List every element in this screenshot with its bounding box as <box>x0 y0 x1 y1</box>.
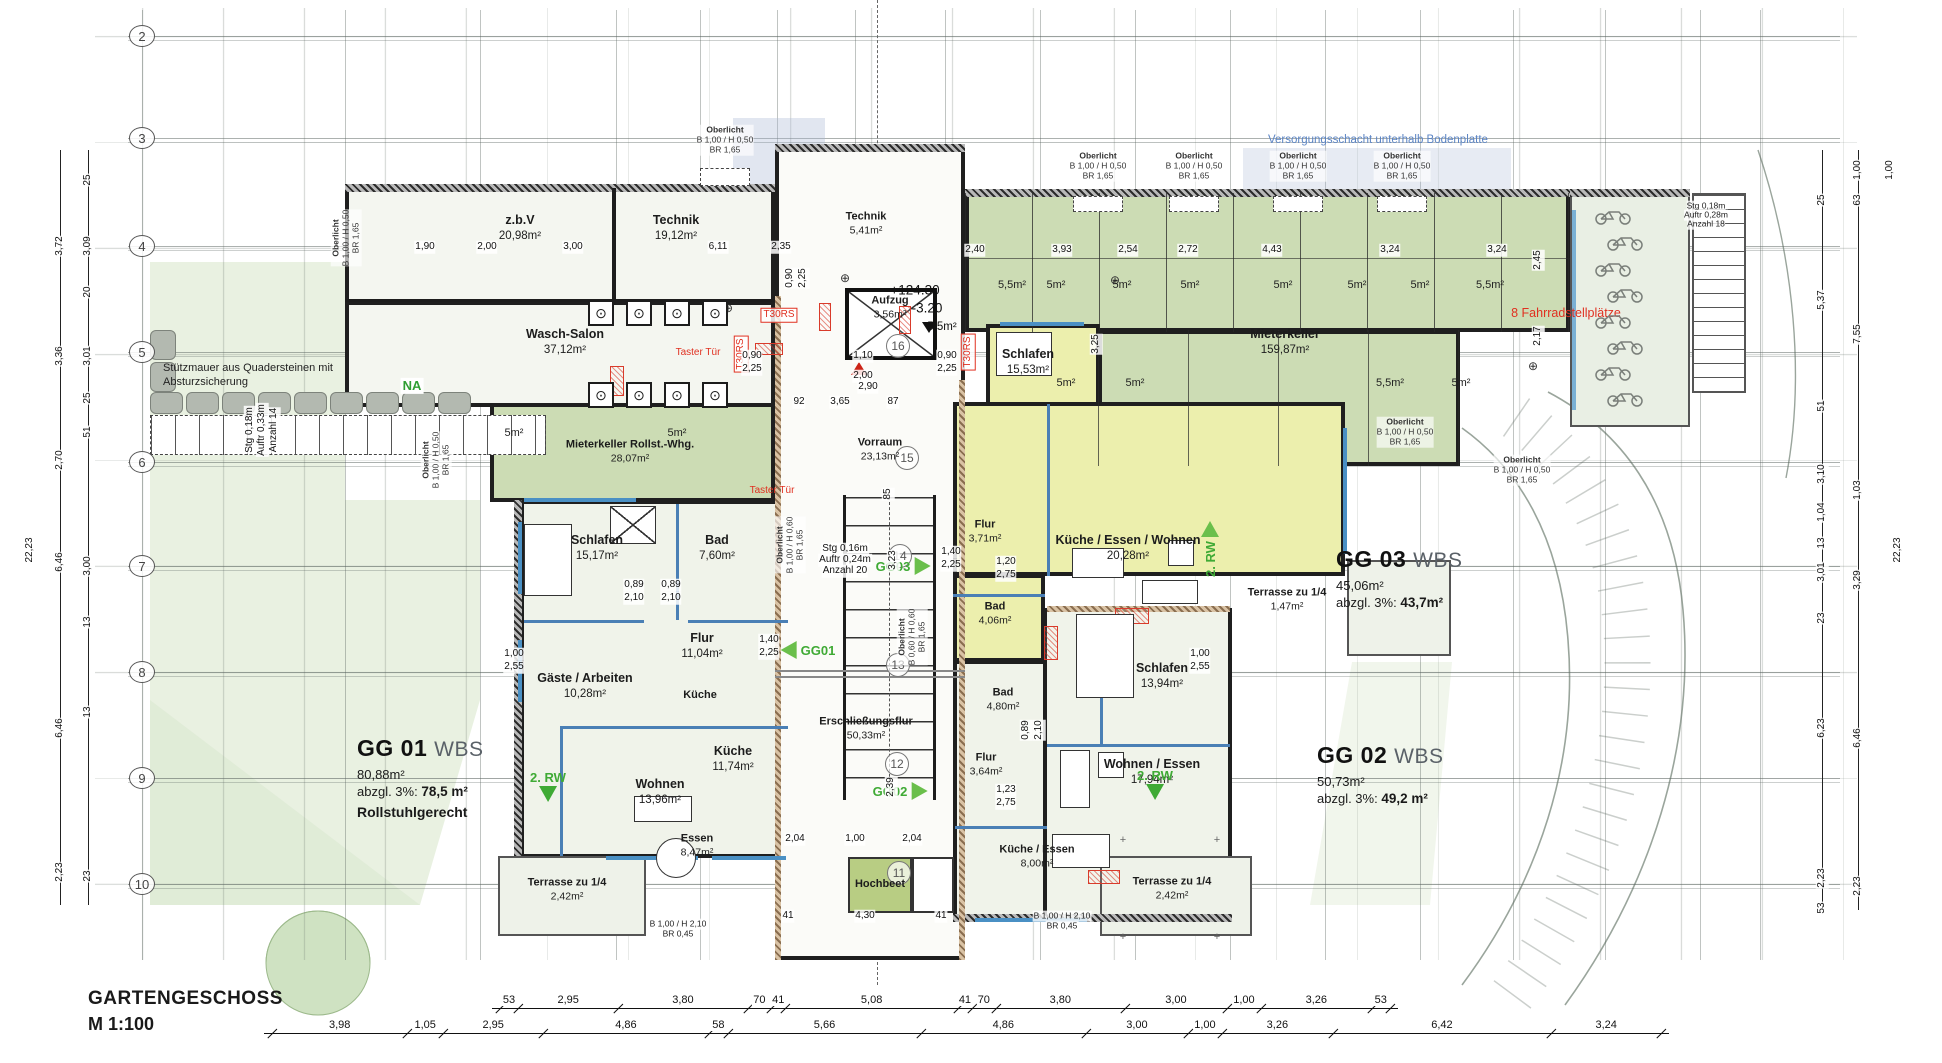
dimension-chain-value: 41 <box>771 994 785 1006</box>
dimension-text: 2,70 <box>54 449 67 470</box>
dimension-text: 3,93 <box>1051 244 1072 257</box>
arrow-label: GG01 <box>801 643 836 658</box>
annotation-redsm: Taster Tür <box>676 347 721 360</box>
washing-machine-icon: ⊙ <box>626 300 652 326</box>
oberlicht-line: B 1,00 / H 0,50 <box>1166 161 1223 171</box>
block-keller-wing <box>965 193 1570 332</box>
dimension-text: 20 <box>82 285 95 298</box>
dimension-text: 41 <box>781 910 794 923</box>
furniture-bed-gg02 <box>1076 614 1134 698</box>
axis-line-v <box>142 10 143 960</box>
apartment-label-gg03: GG 03 WBS45,06m²abzgl. 3%: 43,7m² <box>1336 546 1463 610</box>
wall-gg01-flur-b <box>688 620 788 623</box>
dimension-text: 3,01 <box>82 345 95 366</box>
annotation-redbox: T30RS <box>961 333 976 370</box>
room-area: 159,87m² <box>1250 343 1319 357</box>
direction-arrow-2rw: 2. RW <box>530 770 566 802</box>
dimension-text: 5m² <box>1046 279 1067 293</box>
dimension-text: 2,40 <box>964 244 985 257</box>
dimension-chain-value: 53 <box>1374 994 1388 1006</box>
oberlicht-line: B 1,00 / H 0,50 <box>697 135 754 145</box>
dimension-text: BR 0,45 <box>662 929 695 940</box>
dimension-text: 3,25 <box>1090 333 1103 354</box>
room-name: Bad <box>699 533 735 549</box>
dimension-text: 1,00 <box>503 648 524 661</box>
room-name: Flur <box>970 752 1003 766</box>
oberlicht-line: BR 1,65 <box>697 145 754 155</box>
room-label: Mieterkeller Rollst.-Whg.28,07m² <box>566 439 694 466</box>
annotation-dim: Stg 0,18m <box>244 406 257 454</box>
dimension-text: 23 <box>1816 611 1829 624</box>
skylight-box-2 <box>1073 196 1123 212</box>
terrace-point-icon: + <box>1120 931 1126 943</box>
room-name: Terrasse zu 1/4 <box>528 877 607 891</box>
stone-block <box>366 392 399 414</box>
room-label: Schlafen15,53m² <box>1002 347 1054 377</box>
room-name: Hochbeet <box>855 878 905 892</box>
oberlicht-label: OberlichtB 1,00 / H 0,50BR 1,65 <box>1377 417 1434 448</box>
oberlicht-line: BR 1,65 <box>795 517 805 574</box>
arrow-triangle-icon <box>911 782 927 800</box>
apartment-code: GG 03 <box>1336 546 1406 572</box>
room-label: Küche11,74m² <box>712 744 753 774</box>
room-label: Erschließungsflur50,33m² <box>819 716 913 743</box>
bicycle-icon <box>1606 338 1650 356</box>
room-name: Schlafen <box>571 533 623 549</box>
room-name: Küche / Essen / Wohnen <box>1056 533 1201 549</box>
room-name: Küche <box>712 744 753 760</box>
dimension-text: 2,25 <box>940 559 961 572</box>
dimension-chain-value: 3,00 <box>1125 1019 1148 1031</box>
annotation-note: Stützmauer aus Quadersteinen mit <box>163 362 333 374</box>
window-gg03-east <box>1343 428 1347 554</box>
room-area: 7,60m² <box>699 549 735 563</box>
washing-machine-icon: ⊙ <box>702 382 728 408</box>
dimension-text: 5m² <box>1451 377 1472 391</box>
dimension-text: 5,5m² <box>997 279 1027 293</box>
drawing-title: GARTENGESCHOSS M 1:100 <box>88 988 283 1035</box>
dimension-chain-value: 3,00 <box>1164 994 1187 1006</box>
axis-number-circle: 16 <box>886 334 910 358</box>
dimension-text: 6,46 <box>1852 727 1865 748</box>
dimension-text: 1,40 <box>758 634 779 647</box>
oberlicht-line: BR 1,65 <box>441 432 451 489</box>
stone-block <box>330 392 363 414</box>
dimension-text: 1,00 <box>1189 648 1210 661</box>
arrow-triangle-icon <box>539 786 557 802</box>
wall-gg03-bad-top <box>953 594 1045 597</box>
dimension-text: 1,00 <box>844 833 865 846</box>
grid-bubble: 6 <box>129 451 155 473</box>
arrow-label: 2. RW <box>530 770 566 785</box>
oberlicht-line: BR 1,65 <box>1377 437 1434 447</box>
axis-line-v <box>1700 10 1701 960</box>
dimension-chain-value: 6,42 <box>1430 1019 1453 1031</box>
dimension-chain-value: 5,66 <box>813 1019 836 1031</box>
terrace-point-icon: + <box>1214 834 1220 846</box>
oberlicht-line: Oberlicht <box>1377 417 1434 427</box>
vent-box-3 <box>1088 870 1120 884</box>
dimension-text: 5m² <box>1112 279 1133 293</box>
stone-block <box>402 392 435 414</box>
apartment-standard: WBS <box>1413 549 1462 572</box>
dimension-text: 2,25 <box>936 363 957 376</box>
dimension-text: 2,17 <box>1532 325 1545 346</box>
annotation-dim: Anzahl 14 <box>268 407 281 453</box>
bicycle-icon <box>1606 286 1650 304</box>
dimension-text: 25 <box>82 173 95 186</box>
dimension-text: 0,90 <box>741 350 762 363</box>
dim-line-left-a <box>60 150 61 905</box>
bicycle-icon <box>1606 390 1650 408</box>
dimension-text: 3,24 <box>1379 244 1400 257</box>
dimension-chain-value: 1,00 <box>1193 1019 1216 1031</box>
skylight-box-5 <box>1377 196 1427 212</box>
grid-bubble: 2 <box>129 25 155 47</box>
dimension-text: 2,35 <box>770 241 791 254</box>
room-label: Küche / Essen / Wohnen20,28m² <box>1056 533 1201 563</box>
dimension-text: 1,20 <box>995 556 1016 569</box>
room-name: z.b.V <box>499 213 541 229</box>
furniture-bed-gg01 <box>524 524 572 596</box>
annotation-dim: Anzahl 20 <box>822 565 868 578</box>
oberlicht-label: OberlichtB 0,60 / H 0,60BR 1,65 <box>897 609 928 666</box>
dimension-text: 3,72 <box>54 235 67 256</box>
room-name: Schlafen <box>1136 661 1188 677</box>
title-floor-name: GARTENGESCHOSS <box>88 988 283 1010</box>
direction-arrow-gg02: GG02 <box>873 782 928 800</box>
dimension-text: 0,90 <box>784 267 797 288</box>
room-area: 11,04m² <box>681 647 722 661</box>
terrace-point-icon: + <box>1214 931 1220 943</box>
room-area: 37,12m² <box>526 343 604 357</box>
room-name: Vorraum <box>858 437 902 451</box>
dimension-text: 3,23 <box>887 549 900 570</box>
grid-bubble: 4 <box>129 235 155 257</box>
dimension-chain-value: 70 <box>752 994 766 1006</box>
dimension-text: 3,09 <box>82 235 95 256</box>
oberlicht-label: OberlichtB 1,00 / H 0,50BR 1,65 <box>1166 151 1223 182</box>
dimension-chain-value: 3,98 <box>328 1019 351 1031</box>
room-name: Bad <box>987 687 1020 701</box>
axis-line-h <box>128 138 1840 139</box>
grid-bubble: 7 <box>129 555 155 577</box>
dimension-text: 6,46 <box>54 551 67 572</box>
bicycle-icon <box>1594 208 1638 226</box>
arrow-triangle-icon <box>781 641 797 659</box>
oberlicht-line: B 1,00 / H 0,60 <box>785 517 795 574</box>
terrace-point-icon: + <box>1120 834 1126 846</box>
room-area: 2,42m² <box>528 890 607 903</box>
dimension-text: 2,25 <box>741 363 762 376</box>
annotation-blue: Versorgungsschacht unterhalb Bodenplatte <box>1268 134 1488 146</box>
dimension-chain-value: 70 <box>977 994 991 1006</box>
stair-centerline <box>889 497 890 797</box>
dimension-text: 5,5m² <box>1375 377 1405 391</box>
vent-box-4 <box>819 303 831 331</box>
survey-point-icon: ⊕ <box>840 271 850 285</box>
apartment-net-area: abzgl. 3%: 49,2 m² <box>1317 791 1444 806</box>
room-label: Schlafen13,94m² <box>1136 661 1188 691</box>
dimension-text: 1,10 <box>852 350 873 363</box>
wall-gg02-kueche <box>955 826 1047 829</box>
room-name: Schlafen <box>1002 347 1054 363</box>
dimension-text: 0,90 <box>936 350 957 363</box>
skylight-box-1 <box>700 168 750 186</box>
room-area: 20,98m² <box>499 229 541 243</box>
wall-gg03-flur <box>1047 404 1050 576</box>
dimension-chain-value: 41 <box>958 994 972 1006</box>
oberlicht-label: OberlichtB 1,00 / H 0,50BR 1,65 <box>421 432 452 489</box>
dimension-text: 3,29 <box>1852 569 1865 590</box>
dimension-chain-value: 4,86 <box>614 1019 637 1031</box>
dimension-text: 2,04 <box>784 833 805 846</box>
room-label: Flur3,64m² <box>970 752 1003 779</box>
arrow-triangle-icon <box>914 557 930 575</box>
furniture-sofa-gg03 <box>1142 580 1198 604</box>
apartment-net-area: abzgl. 3%: 78,5 m² <box>357 784 484 799</box>
dimension-text: BR 0,45 <box>1046 921 1079 932</box>
apartment-gross-area: 50,73m² <box>1317 774 1444 789</box>
dimension-chain-value: 4,86 <box>992 1019 1015 1031</box>
dimension-text: 3,65 <box>829 396 850 409</box>
room-area: 15,17m² <box>571 549 623 563</box>
room-area: 4,80m² <box>987 700 1020 713</box>
dimension-text: 41 <box>934 910 947 923</box>
oberlicht-line: Oberlicht <box>1270 151 1327 161</box>
room-area: 28,07m² <box>566 452 694 465</box>
dimension-chain-value: 3,24 <box>1594 1019 1617 1031</box>
dimension-text: 1,23 <box>995 784 1016 797</box>
apartment-label-gg02: GG 02 WBS50,73m²abzgl. 3%: 49,2 m² <box>1317 742 1444 806</box>
room-label: Gäste / Arbeiten10,28m² <box>537 671 632 701</box>
dimension-chain-value: 3,80 <box>671 994 694 1006</box>
washing-machine-icon: ⊙ <box>702 300 728 326</box>
dimension-chain-value: 3,26 <box>1266 1019 1289 1031</box>
room-name: Bad <box>979 601 1012 615</box>
dimension-text: 3,01 <box>1816 561 1829 582</box>
room-label: Wohnen13,96m² <box>635 777 684 807</box>
oberlicht-line: BR 1,65 <box>1374 171 1431 181</box>
stone-block <box>186 392 219 414</box>
room-area: 1,47m² <box>1248 600 1327 613</box>
dimension-text: 2,10 <box>660 592 681 605</box>
dimension-text: 2,00 <box>476 241 497 254</box>
dimension-text: 2,10 <box>1033 719 1046 740</box>
annotation-levelsm: 5,5m² <box>927 320 956 334</box>
hochbeet-frame <box>912 857 954 913</box>
room-name: Gäste / Arbeiten <box>537 671 632 687</box>
apartment-net-area: abzgl. 3%: 43,7m² <box>1336 595 1463 610</box>
room-area: 11,74m² <box>712 760 753 774</box>
room-label: Wasch-Salon37,12m² <box>526 327 604 357</box>
room-name: Küche / Essen <box>999 844 1074 858</box>
apartment-standard: WBS <box>1394 745 1443 768</box>
dimension-text: 13 <box>82 705 95 718</box>
dimension-text: 2,54 <box>1117 244 1138 257</box>
dimension-text: 2,72 <box>1177 244 1198 257</box>
bicycle-icon <box>1594 312 1638 330</box>
dimension-text: 2,55 <box>1189 661 1210 674</box>
room-label: Essen8,47m² <box>681 833 714 860</box>
apartment-code: GG 02 <box>1317 742 1387 768</box>
room-area: 13,94m² <box>1136 677 1188 691</box>
furniture-sofa-gg02 <box>1060 750 1090 808</box>
axis-line-h <box>128 36 1840 37</box>
oberlicht-line: Oberlicht <box>697 125 754 135</box>
bicycle-icon <box>1594 260 1638 278</box>
dimension-text: 5m² <box>504 427 525 441</box>
dimension-text: 1,90 <box>414 241 435 254</box>
arrow-triangle-icon <box>1201 521 1219 537</box>
room-name: Flur <box>681 631 722 647</box>
apartment-code: GG 01 <box>357 735 427 761</box>
skylight-box-3 <box>1169 196 1219 212</box>
room-area: 23,13m² <box>858 450 902 463</box>
vent-box-2 <box>1044 626 1058 660</box>
dimension-text: 2,75 <box>995 797 1016 810</box>
dimension-chain-value: 1,05 <box>413 1019 436 1031</box>
room-label: Technik5,41m² <box>846 211 887 238</box>
dimension-chain-value: 5,08 <box>860 994 883 1006</box>
wall-gg01-flur-a <box>524 620 644 623</box>
room-label: Bad4,80m² <box>987 687 1020 714</box>
stair-left-outdoor <box>150 415 546 455</box>
dimension-text: 63 <box>1852 193 1865 206</box>
oberlicht-line: BR 1,65 <box>351 210 361 267</box>
dimension-text: 23 <box>82 869 95 882</box>
dimension-text: 5m² <box>1125 377 1146 391</box>
oberlicht-label: OberlichtB 1,00 / H 0,50BR 1,65 <box>1070 151 1127 182</box>
dim-line-right-a <box>1822 150 1823 910</box>
bicycle-icon <box>1606 234 1650 252</box>
oberlicht-line: Oberlicht <box>1166 151 1223 161</box>
oberlicht-line: B 1,00 / H 0,50 <box>1270 161 1327 171</box>
stone-block <box>150 392 183 414</box>
axis-line-h <box>128 142 1840 143</box>
dimension-chain-value: 53 <box>502 994 516 1006</box>
room-name: Technik <box>653 213 699 229</box>
room-area: 5,41m² <box>846 224 887 237</box>
dimension-text: 25 <box>1816 193 1829 206</box>
dimension-text: 13 <box>82 615 95 628</box>
dimension-text: 5,5m² <box>1475 279 1505 293</box>
oberlicht-line: B 1,00 / H 0,50 <box>1070 161 1127 171</box>
dimension-chain-value: 58 <box>711 1019 725 1031</box>
dimension-text: 4,43 <box>1261 244 1282 257</box>
room-name: Terrasse zu 1/4 <box>1133 876 1212 890</box>
insulation-core-west <box>775 296 781 960</box>
wall-zbv-technik <box>612 188 616 305</box>
oberlicht-line: B 1,00 / H 0,50 <box>1377 427 1434 437</box>
room-label: Terrasse zu 1/42,42m² <box>528 877 607 904</box>
oberlicht-label: OberlichtB 1,00 / H 0,50BR 1,65 <box>331 210 362 267</box>
dimension-text: 2,25 <box>758 647 779 660</box>
dimension-text: 3,00 <box>562 241 583 254</box>
dimension-text: 3,36 <box>54 345 67 366</box>
dimension-text: 2,45 <box>1532 249 1545 270</box>
washing-machine-icon: ⊙ <box>588 300 614 326</box>
dimension-chain-value: 3,80 <box>1049 994 1072 1006</box>
oberlicht-line: Oberlicht <box>1070 151 1127 161</box>
room-label: Flur11,04m² <box>681 631 722 661</box>
oberlicht-line: Oberlicht <box>775 517 785 574</box>
direction-arrow-gg03: GG03 <box>876 557 931 575</box>
skylight-box-4 <box>1273 196 1323 212</box>
axis-line-v <box>1760 10 1761 960</box>
room-name: Technik <box>846 211 887 225</box>
grid-bubble: 5 <box>129 341 155 363</box>
dimension-text: 5m² <box>667 427 688 441</box>
dimension-text: 92 <box>792 396 805 409</box>
grid-bubble: 8 <box>129 661 155 683</box>
annotation-redsm: Taster Tür <box>750 485 795 498</box>
survey-point-icon: ⊕ <box>1528 359 1538 373</box>
dimension-text: 2,39 <box>885 776 898 797</box>
annotation-level: -3.20 <box>912 301 943 318</box>
dimension-text: 1,00 <box>1852 159 1865 180</box>
oberlicht-label: OberlichtB 1,00 / H 0,50BR 1,65 <box>1270 151 1327 182</box>
grid-bubble: 9 <box>129 767 155 789</box>
dimension-text: 2,75 <box>995 569 1016 582</box>
room-label: Bad4,06m² <box>979 601 1012 628</box>
oberlicht-line: B 1,00 / H 0,50 <box>341 210 351 267</box>
oberlicht-line: Oberlicht <box>331 210 341 267</box>
oberlicht-line: Oberlicht <box>1374 151 1431 161</box>
stone-block <box>438 392 471 414</box>
room-area: 3,71m² <box>969 532 1002 545</box>
dim-line-right-b <box>1858 150 1859 910</box>
dimension-text: 5m² <box>1180 279 1201 293</box>
oberlicht-label: OberlichtB 1,00 / H 0,50BR 1,65 <box>1374 151 1431 182</box>
grid-bubble: 3 <box>129 127 155 149</box>
room-label: Terrasse zu 1/41,47m² <box>1248 587 1327 614</box>
dimension-text: 3,24 <box>1486 244 1507 257</box>
annotation-redbox: T30RS <box>760 308 797 323</box>
oberlicht-line: Oberlicht <box>897 609 907 666</box>
oberlicht-line: B 1,00 / H 0,50 <box>1374 161 1431 171</box>
dimension-text: 5m² <box>1273 279 1294 293</box>
dimension-chain-line <box>264 1033 1669 1034</box>
apartment-standard: WBS <box>434 738 483 761</box>
room-name: Flur <box>969 519 1002 533</box>
dimension-text: 85 <box>882 487 895 500</box>
window-gg01-west-1 <box>518 522 522 594</box>
oberlicht-line: BR 1,65 <box>1070 171 1127 181</box>
oberlicht-line: Oberlicht <box>1494 455 1551 465</box>
room-area: 3,64m² <box>970 765 1003 778</box>
axis-number-circle: 12 <box>885 752 909 776</box>
dimension-text: 87 <box>886 396 899 409</box>
road-edge <box>1758 150 1795 478</box>
room-area: 50,33m² <box>819 729 913 742</box>
apartment-gross-area: 45,06m² <box>1336 578 1463 593</box>
dimension-text: 53 <box>1816 901 1829 914</box>
apartment-gross-area: 80,88m² <box>357 767 484 782</box>
dimension-text: 22,23 <box>24 536 37 563</box>
dimension-text: 1,03 <box>1852 479 1865 500</box>
room-label: Bad7,60m² <box>699 533 735 563</box>
room-area: 3,56m² <box>871 308 908 321</box>
apartment-note: Rollstuhlgerecht <box>357 804 484 820</box>
arrow-label: 2. RW <box>1137 768 1173 783</box>
room-area: 15,53m² <box>1002 363 1054 377</box>
annotation-note: Absturzsicherung <box>163 376 248 388</box>
floor-plan-sheet: ⊕ ⊕ ⊕ ⊕ + + + + 2345678910161514131211z.… <box>0 0 1942 1063</box>
dimension-text: 2,90 <box>857 381 878 394</box>
dimension-text: 2,25 <box>797 267 810 288</box>
room-name: Terrasse zu 1/4 <box>1248 587 1327 601</box>
